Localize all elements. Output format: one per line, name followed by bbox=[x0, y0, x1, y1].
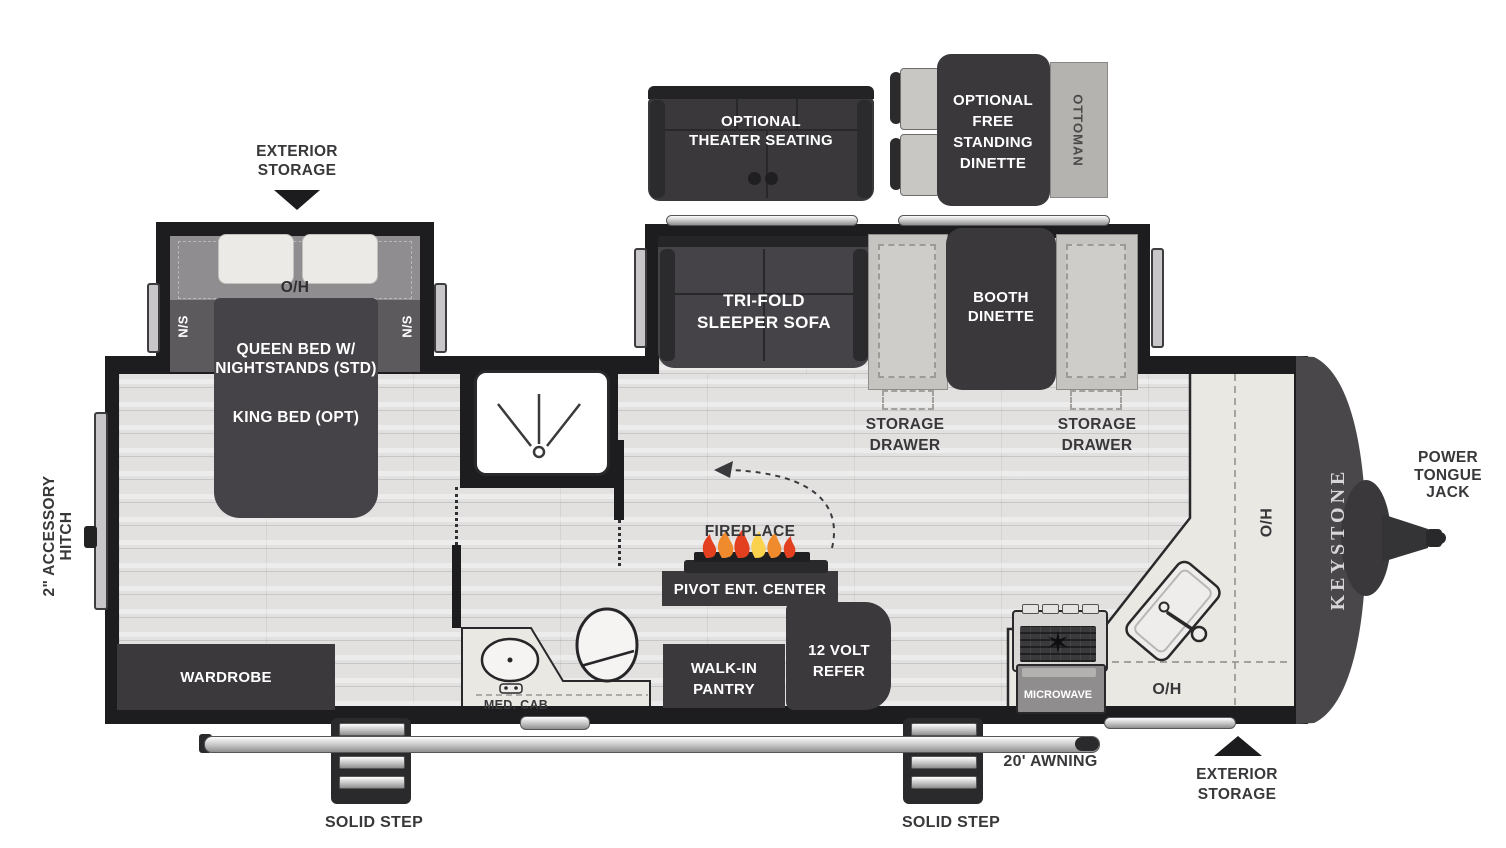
door-threshold bbox=[1104, 717, 1236, 729]
microwave-label: MICROWAVE bbox=[1014, 686, 1102, 705]
awning-bar bbox=[204, 736, 1100, 753]
step-tread bbox=[911, 723, 977, 736]
dinette-chair bbox=[900, 134, 940, 196]
bathroom-faucet bbox=[500, 684, 522, 693]
kitchen-sprayer bbox=[1192, 627, 1206, 641]
kitchen-oh-label: O/H bbox=[1137, 680, 1197, 699]
free-standing-dinette-label: OPTIONAL FREE STANDING DINETTE bbox=[939, 90, 1047, 174]
theater-seating-back bbox=[648, 86, 874, 99]
storage-drawer-left-label: STORAGE DRAWER bbox=[855, 414, 955, 456]
theater-armrest bbox=[857, 100, 872, 198]
refer-label: 12 VOLT REFER bbox=[794, 640, 884, 682]
tongue-jack-cone bbox=[1382, 514, 1428, 562]
booth-dinette-label: BOOTH DINETTE bbox=[951, 288, 1051, 326]
solid-step-right-label: SOLID STEP bbox=[891, 813, 1011, 832]
exterior-storage-front-label: EXTERIOR STORAGE bbox=[1177, 765, 1297, 805]
nightstand-right-label: N/S bbox=[398, 297, 417, 357]
brand-label: KEYSTONE bbox=[1327, 459, 1347, 619]
tongue-jack-tip bbox=[1434, 532, 1446, 544]
cupholder bbox=[765, 172, 778, 185]
step-tread bbox=[339, 723, 405, 736]
floor-plan: ✶ bbox=[0, 0, 1506, 848]
step-tread bbox=[339, 756, 405, 769]
theater-seating-label: OPTIONAL THEATER SEATING bbox=[681, 112, 841, 150]
wardrobe-label: WARDROBE bbox=[136, 668, 316, 687]
dinette-chair bbox=[900, 68, 940, 130]
bed-overhead-label: O/H bbox=[265, 278, 325, 297]
ottoman-label: OTTOMAN bbox=[1069, 71, 1088, 191]
step-tread bbox=[911, 756, 977, 769]
pivot-arrowhead bbox=[714, 461, 733, 478]
theater-armrest bbox=[650, 100, 665, 198]
arrow-up-icon bbox=[1214, 736, 1262, 756]
shower-drain bbox=[534, 447, 544, 457]
exterior-storage-rear-label: EXTERIOR STORAGE bbox=[227, 142, 367, 180]
sofa-label: TRI-FOLD SLEEPER SOFA bbox=[684, 290, 844, 333]
kitchen-ho-label: O/H bbox=[1258, 483, 1277, 563]
storage-drawer-right-label: STORAGE DRAWER bbox=[1047, 414, 1147, 456]
door-threshold bbox=[520, 716, 590, 730]
awning-end-cap bbox=[1075, 737, 1099, 751]
accessory-hitch-label: 2" ACCESSORY HITCH bbox=[41, 456, 75, 616]
pantry-label: WALK-IN PANTRY bbox=[668, 658, 780, 700]
step-tread bbox=[339, 776, 405, 789]
power-tongue-jack-label: POWER TONGUE JACK bbox=[1398, 449, 1498, 502]
bed-label: QUEEN BED W/ NIGHTSTANDS (STD) KING BED … bbox=[206, 340, 386, 427]
kitchen-faucet bbox=[1160, 603, 1169, 612]
med-cab-label: MED. CAB bbox=[478, 696, 554, 715]
solid-step-left-label: SOLID STEP bbox=[314, 813, 434, 832]
kitchen-sink bbox=[1123, 558, 1223, 663]
ent-center-label: PIVOT ENT. CENTER bbox=[666, 580, 834, 599]
nightstand-left-label: N/S bbox=[174, 297, 193, 357]
arrow-down-icon bbox=[274, 190, 320, 210]
awning-label: 20' AWNING bbox=[993, 752, 1108, 771]
step-tread bbox=[911, 776, 977, 789]
toilet bbox=[577, 609, 637, 681]
cupholder bbox=[748, 172, 761, 185]
fireplace-label: FIREPLACE bbox=[695, 522, 805, 541]
